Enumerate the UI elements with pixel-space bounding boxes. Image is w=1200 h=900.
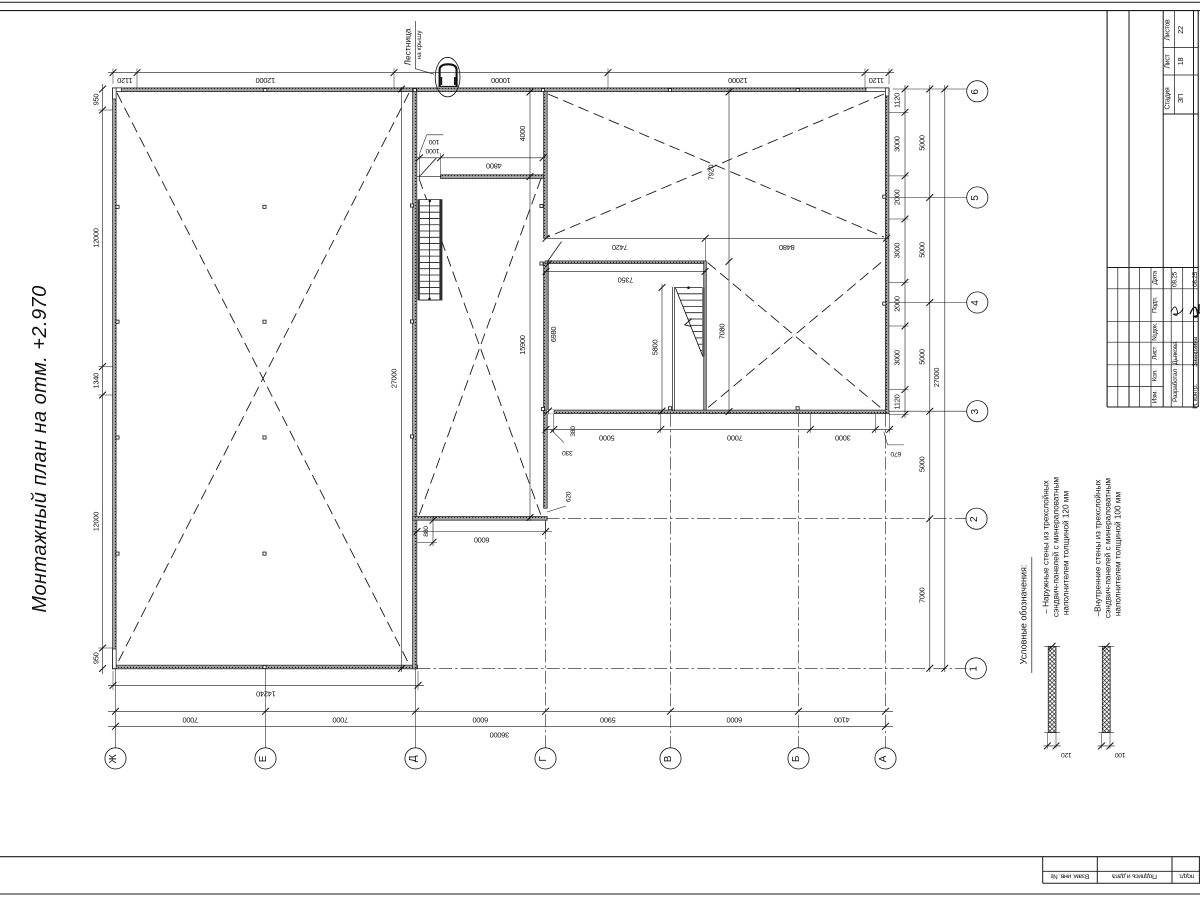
svg-text:08.25: 08.25 xyxy=(1172,271,1179,287)
svg-text:18: 18 xyxy=(1176,58,1185,66)
svg-text:сэндвич-панелей с минераловатн: сэндвич-панелей с минераловатным xyxy=(1052,477,1061,618)
svg-text:Лист: Лист xyxy=(1152,346,1159,359)
svg-text:27000: 27000 xyxy=(389,369,398,388)
svg-text:сэндвич-панелей с минераловатн: сэндвич-панелей с минераловатным xyxy=(1104,478,1113,619)
svg-text:8480: 8480 xyxy=(779,243,795,252)
svg-text:950: 950 xyxy=(91,652,100,664)
svg-text:5000: 5000 xyxy=(917,135,926,151)
svg-text:Дата: Дата xyxy=(1152,270,1159,284)
svg-text:12000: 12000 xyxy=(91,228,100,247)
svg-text:7000: 7000 xyxy=(917,587,926,603)
svg-text:7000: 7000 xyxy=(183,716,199,725)
svg-text:5800: 5800 xyxy=(651,340,660,356)
svg-text:6000: 6000 xyxy=(727,716,743,725)
svg-text:наполнителем толщиной 120 мм: наполнителем толщиной 120 мм xyxy=(1062,491,1071,616)
svg-text:380: 380 xyxy=(570,426,577,437)
svg-text:1120: 1120 xyxy=(117,76,132,85)
svg-text:В: В xyxy=(663,755,674,762)
svg-text:22: 22 xyxy=(1176,26,1185,34)
svg-text:330: 330 xyxy=(562,449,573,456)
svg-text:27000: 27000 xyxy=(932,368,941,387)
svg-text:2000: 2000 xyxy=(893,296,902,312)
svg-text:10000: 10000 xyxy=(491,76,510,85)
svg-text:№док.: №док. xyxy=(1152,322,1159,340)
svg-text:Монтажный план на отм. +2.970: Монтажный план на отм. +2.970 xyxy=(29,285,51,612)
svg-text:Ж: Ж xyxy=(108,754,119,764)
svg-text:620: 620 xyxy=(566,491,573,502)
svg-text:7920: 7920 xyxy=(707,165,716,181)
svg-text:7420: 7420 xyxy=(612,243,628,252)
svg-text:670: 670 xyxy=(890,450,901,457)
svg-text:7000: 7000 xyxy=(333,716,349,725)
svg-text:100: 100 xyxy=(428,138,439,145)
svg-text:3000: 3000 xyxy=(893,136,902,152)
svg-text:Стадия: Стадия xyxy=(1165,87,1172,110)
svg-text:6000: 6000 xyxy=(474,536,490,545)
svg-text:Заварзина: Заварзина xyxy=(1192,337,1199,367)
svg-text:Дьякова: Дьякова xyxy=(1172,341,1179,365)
svg-text:3: 3 xyxy=(970,408,981,414)
svg-text:5000: 5000 xyxy=(917,242,926,258)
svg-text:4100: 4100 xyxy=(834,716,850,725)
svg-text:Лист: Лист xyxy=(1165,53,1172,68)
svg-text:1120: 1120 xyxy=(893,394,902,409)
svg-text:7080: 7080 xyxy=(718,324,727,340)
svg-text:Подпись и дата: Подпись и дата xyxy=(1112,873,1157,880)
svg-text:Д: Д xyxy=(408,755,419,762)
svg-text:7350: 7350 xyxy=(618,275,634,284)
svg-text:950: 950 xyxy=(91,94,100,106)
svg-text:3000: 3000 xyxy=(893,243,902,259)
svg-text:2: 2 xyxy=(969,516,980,522)
svg-text:5: 5 xyxy=(970,195,981,201)
svg-text:12000: 12000 xyxy=(91,512,100,531)
svg-text:1120: 1120 xyxy=(893,93,902,108)
svg-text:12000: 12000 xyxy=(728,76,747,85)
svg-text:– Наружные стены из трехслойны: – Наружные стены из трехслойных xyxy=(1042,480,1051,614)
svg-text:Е: Е xyxy=(258,755,269,762)
svg-text:5000: 5000 xyxy=(917,349,926,365)
svg-text:36000: 36000 xyxy=(490,730,509,739)
svg-text:3000: 3000 xyxy=(893,350,902,366)
svg-text:6: 6 xyxy=(970,89,981,95)
svg-text:Взам. инв. №: Взам. инв. № xyxy=(1051,873,1090,880)
svg-text:5900: 5900 xyxy=(600,716,616,725)
svg-text:4800: 4800 xyxy=(486,162,502,171)
svg-text:1340: 1340 xyxy=(91,373,100,389)
svg-text:6980: 6980 xyxy=(549,327,558,343)
svg-text:Б: Б xyxy=(791,755,802,762)
svg-text:3000: 3000 xyxy=(835,434,851,443)
svg-text:2000: 2000 xyxy=(893,190,902,206)
svg-text:Г: Г xyxy=(538,756,549,762)
svg-text:Подп.: Подп. xyxy=(1152,297,1159,313)
svg-text:А: А xyxy=(878,755,889,762)
svg-text:на крышу: на крышу xyxy=(416,30,423,60)
svg-text:1000: 1000 xyxy=(425,147,439,154)
svg-text:5000: 5000 xyxy=(917,457,926,473)
svg-text:08.25: 08.25 xyxy=(1192,271,1199,287)
svg-text:–Внутренние стены из трехслойн: –Внутренние стены из трехслойных xyxy=(1094,480,1103,617)
svg-text:Разработал: Разработал xyxy=(1171,369,1179,402)
svg-text:5000: 5000 xyxy=(599,434,615,443)
svg-text:4: 4 xyxy=(970,300,981,306)
svg-text:Листов: Листов xyxy=(1165,19,1172,41)
svg-text:ЗП: ЗП xyxy=(1176,94,1185,103)
svg-text:наполнителем толщиной 100 мм: наполнителем толщиной 100 мм xyxy=(1114,492,1123,617)
svg-text:Лестница: Лестница xyxy=(403,28,413,65)
svg-text:100: 100 xyxy=(1115,751,1126,758)
svg-text:Н. контр.: Н. контр. xyxy=(1192,384,1199,409)
svg-text:4000: 4000 xyxy=(518,126,527,142)
svg-text:Изм.: Изм. xyxy=(1152,390,1159,403)
svg-text:7000: 7000 xyxy=(727,434,743,443)
svg-text:подл.: подл. xyxy=(1178,873,1194,880)
svg-text:1120: 1120 xyxy=(869,76,884,85)
svg-text:6000: 6000 xyxy=(473,716,489,725)
svg-text:14240: 14240 xyxy=(256,690,275,699)
svg-text:Кол.: Кол. xyxy=(1152,369,1159,381)
svg-text:15900: 15900 xyxy=(518,335,527,354)
svg-text:1: 1 xyxy=(968,666,979,672)
svg-text:Условные обозначения:: Условные обозначения: xyxy=(1019,565,1029,665)
svg-text:12000: 12000 xyxy=(256,76,275,85)
svg-text:120: 120 xyxy=(1061,751,1072,758)
